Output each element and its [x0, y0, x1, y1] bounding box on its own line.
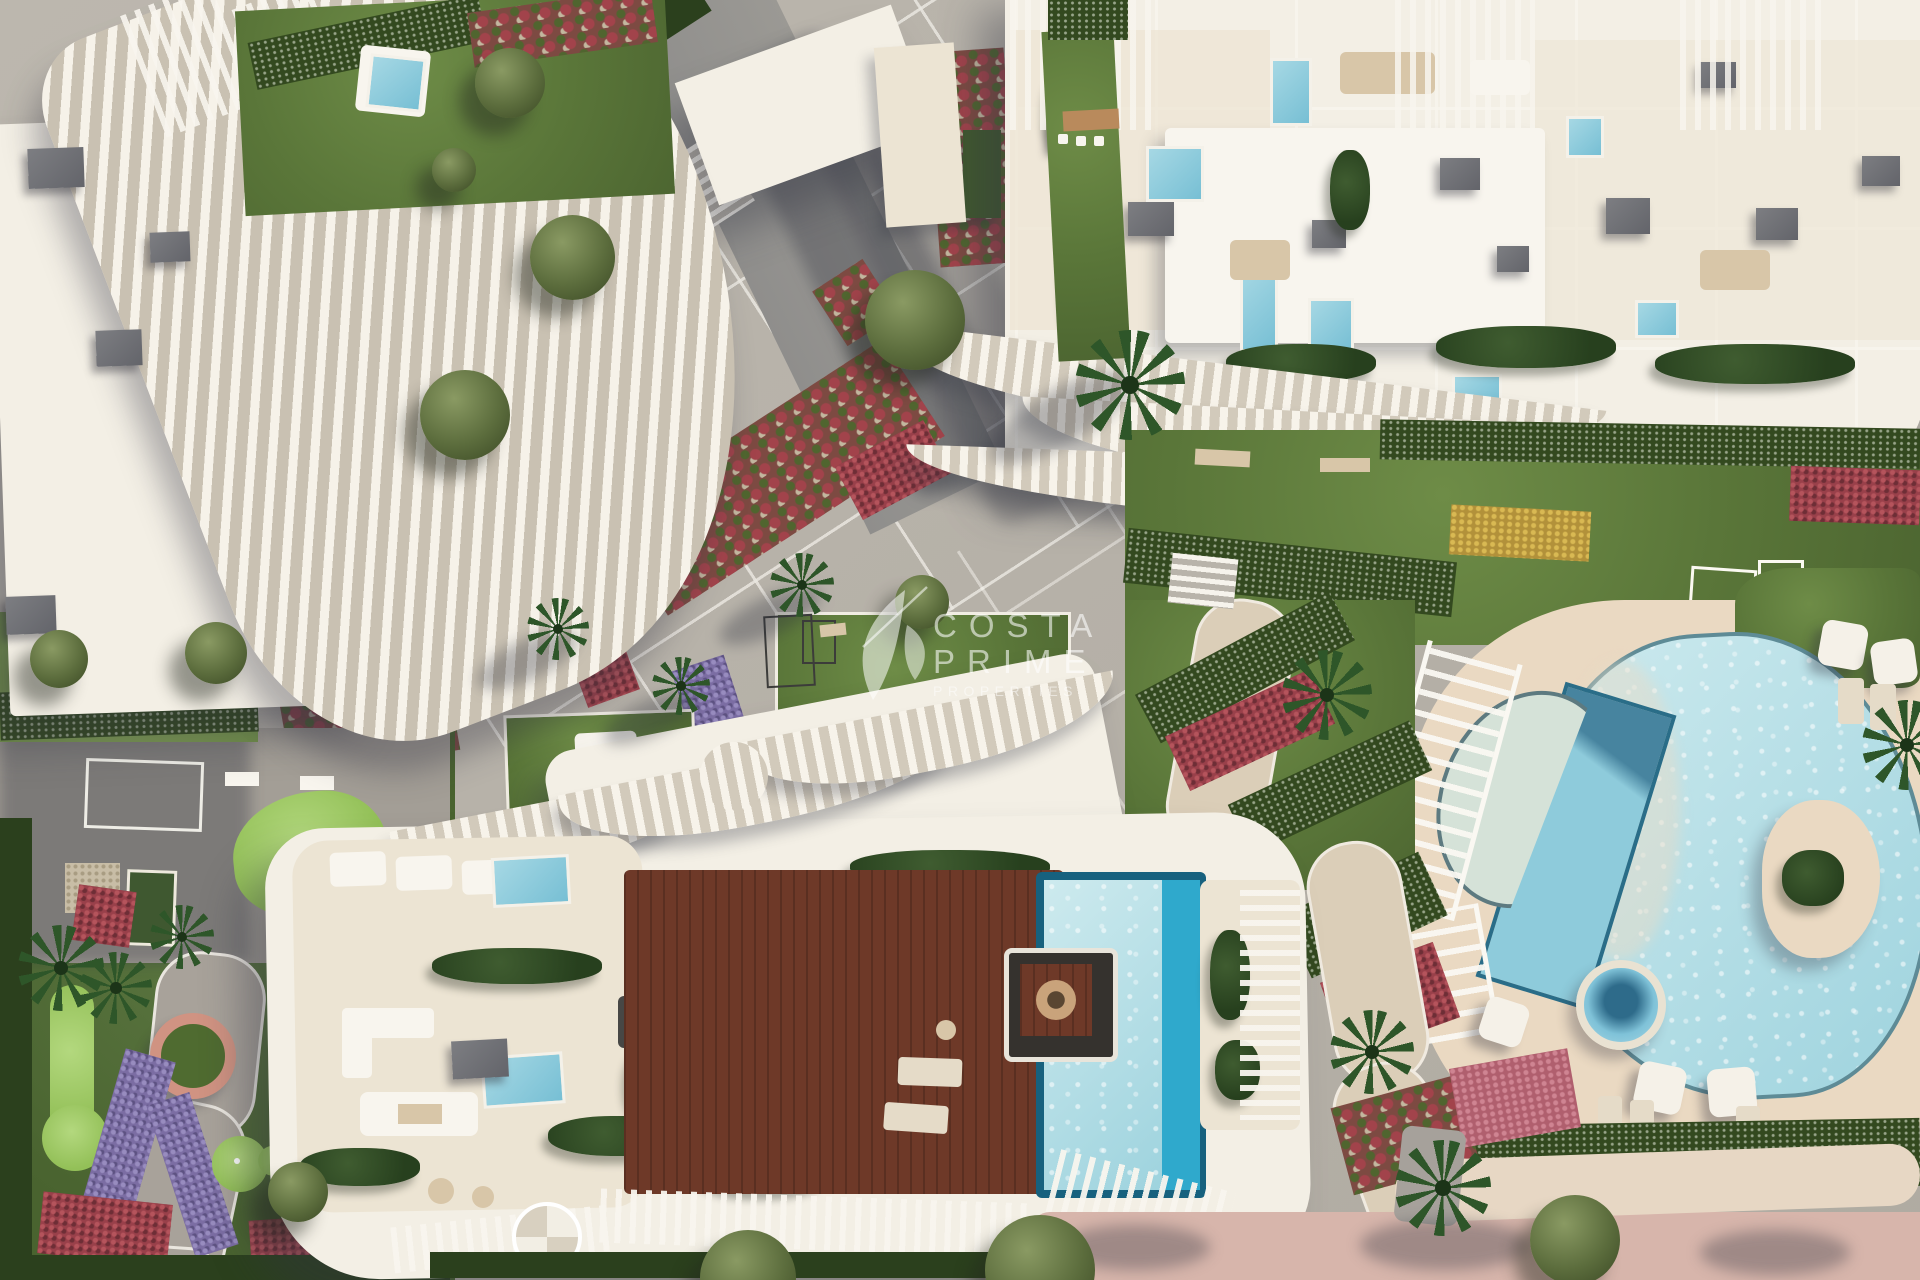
pouf: [936, 1020, 956, 1040]
rooftop-unit: [451, 1039, 509, 1080]
sun-lounger: [883, 1102, 949, 1134]
rooftop-plunge-pool: [1146, 146, 1204, 202]
terrace-planting: [1330, 150, 1370, 230]
rooftop-pergola-slats: [1680, 0, 1830, 130]
rooftop-unit: [1440, 158, 1480, 190]
balustrade-slats: [1240, 890, 1300, 1120]
jacuzzi: [1576, 960, 1666, 1050]
rooftop-plunge-pool: [1270, 58, 1312, 126]
palm-tree: [527, 598, 589, 660]
pouf: [428, 1178, 454, 1204]
watermark-word-properties: PROPERTIES: [933, 680, 1104, 702]
garden-steps: [1168, 553, 1239, 610]
parasol: [1816, 618, 1869, 671]
watermark-word-prime: PRIME: [933, 644, 1104, 680]
rooftop-unit: [1862, 156, 1900, 186]
olive-tree: [432, 148, 476, 192]
palm-tree: [1075, 330, 1185, 440]
rooftop-pergola-slats: [1395, 0, 1535, 135]
yellow-flower-bed: [1449, 504, 1591, 561]
rooftop-wood-deck: [624, 870, 1064, 1194]
palm-tree: [652, 657, 710, 715]
rooftop-unit: [1128, 202, 1174, 236]
boundary-hedge: [0, 818, 32, 1263]
rooftop-unit: [1497, 246, 1529, 272]
palm-tree: [1282, 650, 1372, 740]
olive-tree: [268, 1162, 328, 1222]
sun-lounger: [1838, 678, 1864, 724]
rooftop-unit: [5, 595, 56, 635]
olive-tree: [1530, 1195, 1620, 1280]
wooden-dining-table: [1063, 109, 1120, 132]
olive-tree: [530, 215, 615, 300]
cabana-round-table: [1036, 980, 1076, 1020]
outdoor-sofa: [342, 1008, 372, 1078]
olive-tree: [30, 630, 88, 688]
palm-tree: [150, 905, 214, 969]
terrace-plunge-pool: [491, 854, 572, 908]
palm-tree: [770, 553, 834, 617]
entry-wall: [874, 42, 966, 227]
bench: [1320, 458, 1370, 472]
island-planting: [1782, 850, 1844, 906]
costa-prime-logo-icon: [835, 585, 930, 705]
sun-lounger: [898, 1057, 963, 1087]
rooftop-unit: [149, 231, 190, 262]
aerial-render-scene: COSTA PRIME PROPERTIES: [0, 0, 1920, 1280]
palm-tree: [1330, 1010, 1414, 1094]
parasol: [1869, 637, 1919, 687]
terrace-planting: [432, 948, 602, 984]
lounge-set: [1230, 240, 1290, 280]
garden-shed-green-roof: [963, 130, 1001, 218]
rooftop-unit: [1606, 198, 1650, 234]
bench: [300, 776, 334, 790]
dining-chair: [1076, 136, 1086, 146]
terrace-planting: [1655, 344, 1855, 384]
day-bed: [329, 851, 386, 887]
olive-tree: [185, 622, 247, 684]
rooftop-unit: [1756, 208, 1798, 240]
red-flower-bed: [1789, 466, 1920, 526]
lounge-set: [1700, 250, 1770, 290]
bench: [225, 772, 259, 786]
palm-tree: [80, 952, 152, 1024]
watermark-word-costa: COSTA: [933, 608, 1104, 644]
pouf: [472, 1186, 494, 1208]
terrace-planting: [1436, 326, 1616, 368]
rooftop-plunge-pool: [1566, 116, 1604, 158]
rooftop-plunge-pool: [1635, 300, 1679, 338]
dining-chair: [1058, 134, 1068, 144]
tree-shadow: [1700, 1230, 1850, 1275]
palm-tree: [1395, 1140, 1491, 1236]
dining-chair: [1094, 136, 1104, 146]
mini-golf-hole-flag: [234, 1158, 240, 1164]
bench: [1195, 449, 1251, 468]
table-runner: [398, 1104, 442, 1124]
rooftop-unit: [27, 147, 84, 189]
rooftop-pool-deep-lane: [1162, 880, 1200, 1190]
garden-pool: [365, 53, 426, 113]
watermark: COSTA PRIME PROPERTIES: [835, 580, 1135, 710]
olive-tree: [865, 270, 965, 370]
olive-tree: [420, 370, 510, 460]
hedge-row: [1048, 0, 1128, 40]
day-bed: [395, 855, 452, 891]
rooftop-unit: [95, 329, 142, 367]
pergola-frame: [84, 758, 204, 832]
olive-tree: [475, 48, 545, 118]
